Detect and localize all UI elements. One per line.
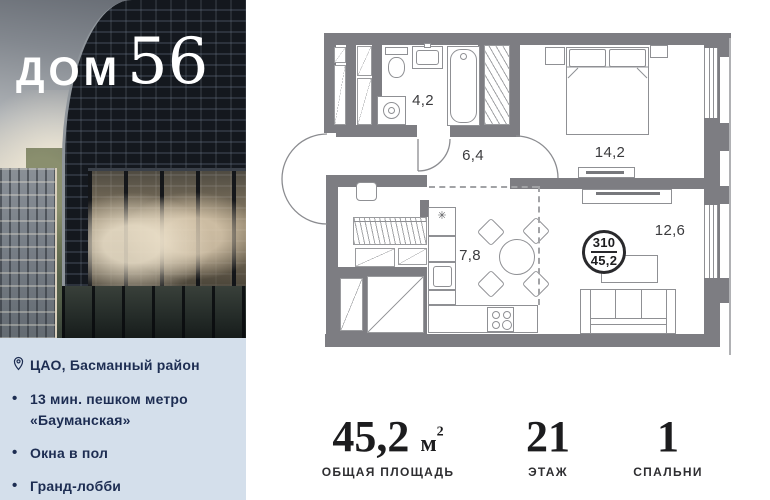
tv-bedroom	[586, 171, 624, 174]
washing-machine-drum-center	[388, 107, 395, 114]
window-glazing-line	[709, 48, 710, 118]
zone-dashed-line	[429, 186, 538, 188]
closet-panel	[334, 65, 346, 125]
wall-segment	[336, 125, 417, 137]
bullet-icon: •	[12, 476, 30, 496]
kitchen-cabinet	[428, 290, 456, 305]
sofa-armrest-line	[666, 290, 667, 333]
sofa-seat-divider	[641, 290, 642, 318]
stat-bedrooms-label: СПАЛЬНИ	[613, 465, 723, 479]
photo-lit-interior	[88, 168, 246, 293]
stove-burner	[492, 311, 500, 319]
feature-row: • Гранд-лобби	[12, 476, 232, 496]
wall-segment	[346, 45, 356, 128]
tv-living	[596, 192, 660, 195]
area-number: 45,2	[332, 412, 409, 461]
info-panel: ЦАО, Басманный район • 13 мин. пешком ме…	[0, 338, 246, 500]
stat-total-area: 45,2 м2 ОБЩАЯ ПЛОЩАДЬ	[288, 414, 488, 479]
facade-line	[729, 38, 731, 355]
fridge-snowflake-icon: ✳	[428, 209, 456, 222]
closet-panel	[367, 276, 424, 333]
room-area-label-bedroom: 14,2	[585, 144, 635, 161]
stat-bedrooms: 1 СПАЛЬНИ	[613, 414, 723, 479]
bathtub-drain	[460, 53, 467, 60]
window	[704, 48, 718, 118]
window-glazing-line	[713, 205, 714, 278]
feature-text: Гранд-лобби	[30, 476, 121, 496]
wall-segment	[325, 334, 715, 347]
kitchen-counter	[428, 305, 538, 333]
bullet-icon: •	[12, 443, 30, 463]
ventilation-shaft	[484, 45, 510, 125]
photo-left-tower	[0, 168, 57, 338]
pillow	[609, 49, 646, 67]
location-text: ЦАО, Басманный район	[30, 355, 200, 376]
stove-burner	[492, 321, 500, 329]
room-area-label-kitchen: 7,8	[450, 247, 490, 264]
sink-tap	[424, 43, 431, 48]
closet-panel	[334, 47, 346, 63]
sofa-armrest-line	[590, 290, 591, 333]
stat-floor: 21 ЭТАЖ	[493, 414, 603, 479]
sofa	[580, 289, 676, 334]
room-area-label-living: 12,6	[645, 222, 695, 239]
stove	[487, 307, 514, 332]
room-area-label-bathroom: 4,2	[403, 92, 443, 109]
room-area-label-hallway: 6,4	[453, 147, 493, 164]
nightstand	[545, 47, 565, 65]
page: ДОМ 56 ЦАО, Басманный район • 13 мин. пе…	[0, 0, 770, 500]
apartment-area: 45,2	[591, 254, 618, 268]
nightstand	[650, 45, 668, 58]
closet-panel	[357, 78, 372, 125]
wall-segment	[325, 33, 720, 45]
bathtub-inner	[450, 49, 477, 123]
stat-floor-label: ЭТАЖ	[493, 465, 603, 479]
stat-total-area-value: 45,2 м2	[288, 414, 488, 460]
apartment-number: 310	[593, 236, 616, 250]
location-pin-icon	[12, 355, 30, 376]
feature-text: 13 мин. пешком метро «Бауманская»	[30, 389, 208, 430]
wall-segment	[510, 45, 520, 135]
stat-floor-value: 21	[493, 414, 603, 460]
logo-word: ДОМ	[16, 52, 121, 92]
closet-panel	[355, 248, 395, 267]
location-row: ЦАО, Басманный район	[12, 355, 232, 376]
sofa-seam	[590, 318, 667, 319]
building-photo: ДОМ 56	[0, 0, 246, 338]
toilet-bowl	[388, 57, 405, 78]
feature-row: • 13 мин. пешком метро «Бауманская»	[12, 389, 232, 430]
closet-hanger-rail	[353, 217, 427, 245]
dining-chair	[477, 218, 505, 246]
dining-chair	[522, 270, 550, 298]
hanger-rod	[354, 221, 426, 222]
tv-console-bedroom	[578, 167, 635, 178]
stove-burner	[502, 320, 512, 330]
sofa-seat-divider	[615, 290, 616, 318]
logo-number: 56	[127, 30, 208, 94]
stat-bedrooms-value: 1	[613, 414, 723, 460]
bullet-icon: •	[12, 389, 30, 430]
window-glazing-line	[713, 48, 714, 118]
zone-dashed-line	[538, 186, 540, 305]
stat-total-area-label: ОБЩАЯ ПЛОЩАДЬ	[288, 465, 488, 479]
window-glazing-line	[709, 205, 710, 278]
sink-basin	[416, 50, 439, 65]
closet-panel	[398, 248, 427, 265]
closet-panel	[357, 46, 372, 76]
kitchen-sink-basin	[433, 266, 452, 287]
closet-panel	[340, 278, 363, 331]
area-unit-sup: 2	[437, 424, 444, 439]
window	[704, 205, 718, 278]
dining-table	[499, 239, 535, 275]
toilet-tank	[385, 47, 408, 55]
pillow	[569, 49, 606, 67]
feature-row: • Окна в пол	[12, 443, 232, 463]
photo-lower-windows	[62, 286, 246, 338]
dining-chair	[477, 270, 505, 298]
sofa-seam	[590, 324, 667, 325]
project-logo: ДОМ 56	[16, 30, 208, 94]
feature-text: Окна в пол	[30, 443, 108, 463]
tv-console-living	[582, 189, 672, 204]
wall-segment	[510, 178, 720, 189]
stove-burner	[503, 311, 511, 319]
apartment-badge: 310 45,2	[582, 230, 626, 274]
closet-shelf	[356, 182, 377, 201]
area-unit: м	[420, 431, 436, 457]
